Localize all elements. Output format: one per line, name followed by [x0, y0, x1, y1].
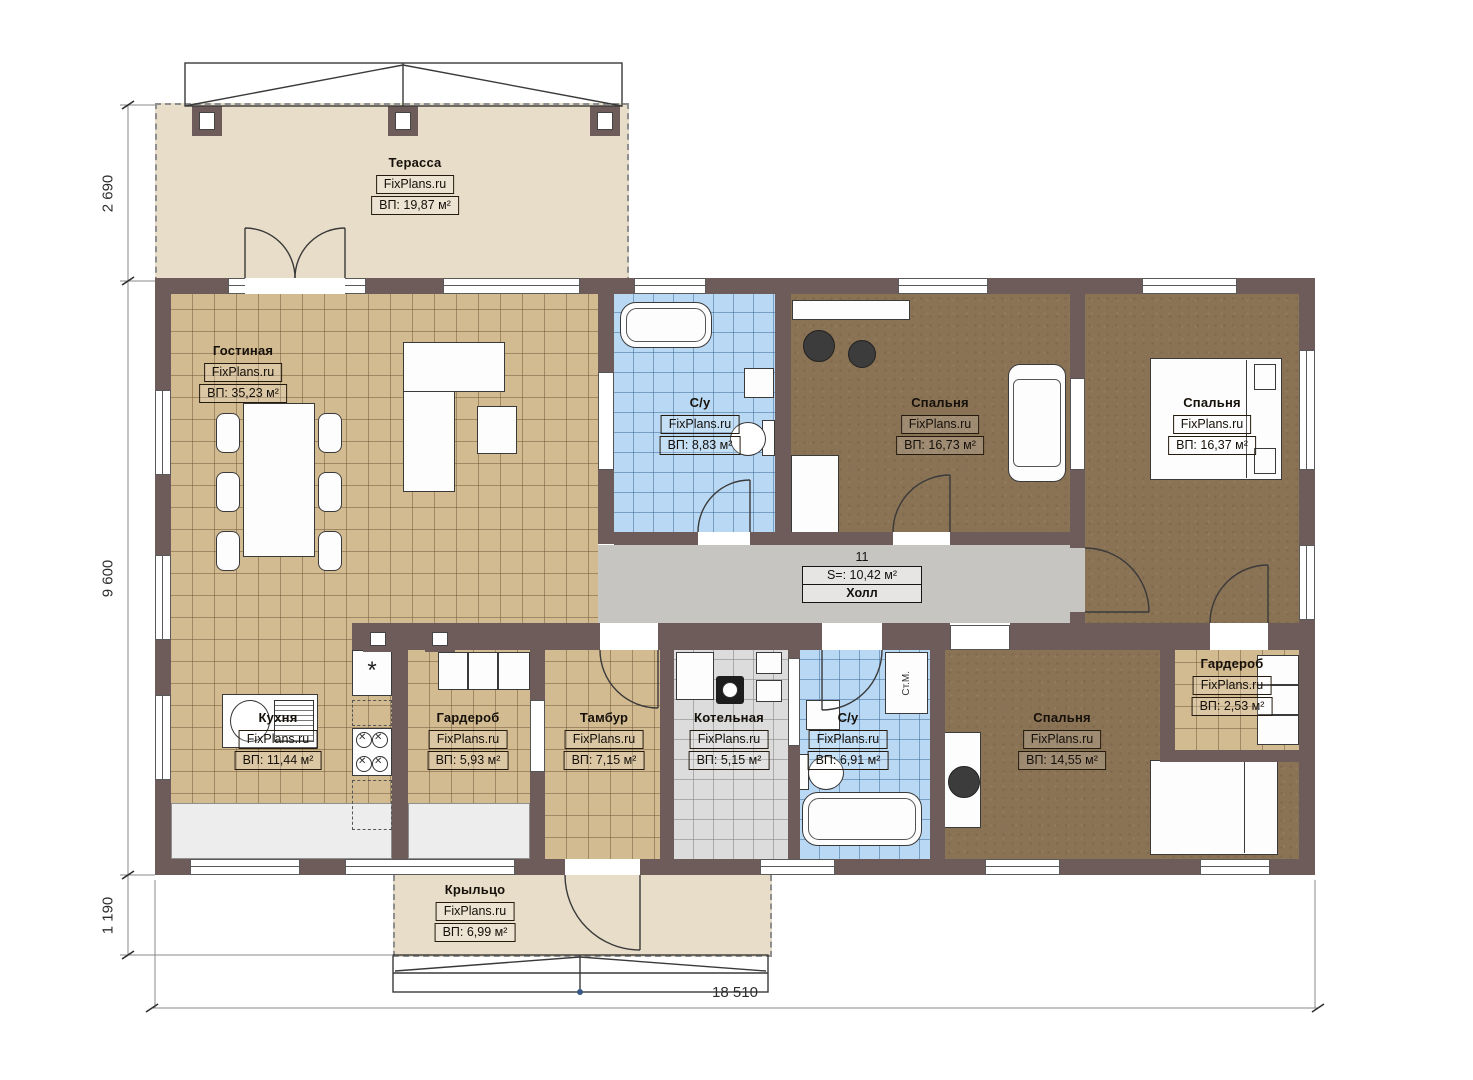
desk-chair: [948, 766, 980, 798]
room-area: ВП: 5,93 м²: [428, 751, 509, 770]
tall-cabinet: [352, 780, 392, 830]
wall-segment: [1160, 623, 1210, 650]
room-label-hall: 11 S=: 10,42 м² Холл: [802, 550, 922, 603]
room-name: Холл: [803, 584, 921, 602]
dimension-bottom-total: 18 510: [675, 984, 795, 1001]
wall-segment: [614, 532, 698, 545]
room-area: S=: 10,42 м²: [803, 567, 921, 584]
room-name: С/у: [838, 710, 859, 725]
wall-segment: [658, 623, 822, 650]
shelving: [498, 652, 530, 690]
tall-cabinet: [352, 700, 392, 726]
room-area: ВП: 6,99 м²: [435, 923, 516, 942]
hall-label-table: S=: 10,42 м² Холл: [802, 566, 922, 603]
room-area: ВП: 14,55 м²: [1018, 751, 1106, 770]
watermark: FixPlans.ru: [239, 730, 318, 749]
fixture: [756, 680, 782, 702]
room-name: Гостиная: [213, 343, 273, 358]
shelving: [1257, 715, 1299, 745]
loveseat: [1008, 364, 1066, 482]
room-label-bathroom1: С/у FixPlans.ru ВП: 8,83 м²: [660, 395, 741, 455]
wardrobe1-bottom-cabinet: [408, 803, 530, 859]
watermark: FixPlans.ru: [1023, 730, 1102, 749]
coffee-table: [477, 406, 517, 454]
wall-segment: [788, 746, 800, 859]
watermark: FixPlans.ru: [809, 730, 888, 749]
hall-floor: [1070, 548, 1085, 612]
bathtub: [620, 302, 712, 348]
room-name: Крыльцо: [445, 882, 506, 897]
watermark: FixPlans.ru: [690, 730, 769, 749]
watermark: FixPlans.ru: [1173, 415, 1252, 434]
door-opening: [565, 859, 640, 875]
door-leaf: [1070, 378, 1085, 470]
room-name: Тамбур: [580, 710, 628, 725]
door-opening: [1210, 625, 1268, 650]
cabinet: [791, 455, 839, 533]
room-label-bedroom3: Спальня FixPlans.ru ВП: 14,55 м²: [1018, 710, 1106, 770]
fixture: [756, 652, 782, 674]
window: [190, 859, 300, 875]
window: [443, 278, 580, 294]
door-opening: [245, 278, 345, 294]
vent-shaft: [425, 626, 455, 652]
door-opening: [600, 625, 658, 650]
watermark: FixPlans.ru: [901, 415, 980, 434]
room-label-tambour: Тамбур FixPlans.ru ВП: 7,15 м²: [564, 710, 645, 770]
wall-segment: [882, 623, 950, 650]
wall-segment: [530, 650, 545, 700]
chair: [216, 413, 240, 453]
door-leaf: [788, 658, 800, 746]
window: [155, 390, 171, 475]
wall-segment: [750, 532, 893, 545]
desk-chair: [848, 340, 876, 368]
bathtub: [802, 792, 922, 846]
window: [898, 278, 988, 294]
boiler-unit: [676, 652, 714, 700]
chair: [318, 531, 342, 571]
room-area: ВП: 35,23 м²: [199, 384, 287, 403]
room-label-living: Гостиная FixPlans.ru ВП: 35,23 м²: [199, 343, 287, 403]
shelving: [468, 652, 498, 690]
room-area: ВП: 19,87 м²: [371, 196, 459, 215]
wall-segment: [788, 650, 800, 658]
vent-shaft: [363, 626, 393, 652]
door-opening: [893, 532, 950, 545]
window: [1299, 545, 1315, 620]
washing-machine-label: Ст.М.: [901, 671, 912, 696]
wall-segment: [155, 859, 1315, 875]
wall-segment: [1160, 750, 1299, 762]
shelving: [438, 652, 468, 690]
window: [345, 859, 515, 875]
room-label-wardrobe1: Гардероб FixPlans.ru ВП: 5,93 м²: [428, 710, 509, 770]
room-name: Спальня: [1033, 710, 1091, 725]
pillow: [1254, 364, 1276, 390]
door-leaf: [598, 372, 614, 470]
room-label-porch: Крыльцо FixPlans.ru ВП: 6,99 м²: [435, 882, 516, 942]
desk-chair: [803, 330, 835, 362]
bed: [1150, 760, 1278, 855]
window: [985, 859, 1060, 875]
dimension-left-bottom: 1 190: [100, 886, 117, 946]
room-label-bedroom1: Спальня FixPlans.ru ВП: 16,73 м²: [896, 395, 984, 455]
room-area: ВП: 7,15 м²: [564, 751, 645, 770]
room-label-wardrobe2: Гардероб FixPlans.ru ВП: 2,53 м²: [1192, 656, 1273, 716]
room-number: 11: [856, 550, 869, 564]
floor-plan: * Ст.М.: [0, 0, 1473, 1080]
terrace-column: [388, 106, 418, 136]
wall-segment: [775, 294, 791, 545]
dimension-left-main: 9 600: [100, 549, 117, 609]
door-opening: [698, 532, 750, 545]
window: [634, 278, 706, 294]
washbasin: [744, 368, 774, 398]
room-name: Гардероб: [436, 710, 499, 725]
room-name: Спальня: [1183, 395, 1241, 410]
pillow: [1254, 448, 1276, 474]
terrace-column: [192, 106, 222, 136]
watermark: FixPlans.ru: [429, 730, 508, 749]
dimension-left-top: 2 690: [100, 164, 117, 224]
room-label-bathroom2: С/у FixPlans.ru ВП: 6,91 м²: [808, 710, 889, 770]
room-name: С/у: [690, 395, 711, 410]
wall-segment: [392, 650, 408, 859]
desk: [792, 300, 910, 320]
wall-segment: [930, 650, 945, 859]
window: [760, 859, 835, 875]
room-label-bedroom2: Спальня FixPlans.ru ВП: 16,37 м²: [1168, 395, 1256, 455]
bed-line: [1244, 762, 1245, 853]
room-area: ВП: 16,73 м²: [896, 436, 984, 455]
room-area: ВП: 5,15 м²: [689, 751, 770, 770]
room-area: ВП: 8,83 м²: [660, 436, 741, 455]
watermark: FixPlans.ru: [565, 730, 644, 749]
fridge: *: [352, 650, 392, 696]
wall-segment: [950, 532, 1085, 545]
room-label-terrace: Терасса FixPlans.ru ВП: 19,87 м²: [371, 155, 459, 215]
window: [155, 555, 171, 640]
stove: [352, 728, 392, 776]
room-name: Спальня: [911, 395, 969, 410]
room-label-kitchen: Кухня FixPlans.ru ВП: 11,44 м²: [235, 710, 322, 770]
room-label-boiler: Котельная FixPlans.ru ВП: 5,15 м²: [689, 710, 770, 770]
wall-segment: [1160, 650, 1175, 750]
room-area: ВП: 16,37 м²: [1168, 436, 1256, 455]
room-area: ВП: 11,44 м²: [235, 751, 322, 770]
wall-segment: [1010, 623, 1160, 650]
wall-segment: [1268, 623, 1299, 650]
watermark: FixPlans.ru: [661, 415, 740, 434]
boiler-dial: [722, 682, 738, 698]
wall-segment: [530, 772, 545, 859]
corner-sofa: [403, 342, 505, 392]
watermark: FixPlans.ru: [204, 363, 283, 382]
window: [155, 695, 171, 780]
chair: [216, 472, 240, 512]
door-leaf: [950, 625, 1010, 650]
terrace-column: [590, 106, 620, 136]
window: [1200, 859, 1270, 875]
washing-machine: Ст.М.: [885, 652, 928, 714]
watermark: FixPlans.ru: [376, 175, 455, 194]
room-name: Кухня: [258, 710, 297, 725]
room-area: ВП: 2,53 м²: [1192, 697, 1273, 716]
room-name: Котельная: [694, 710, 764, 725]
wall-segment: [660, 650, 674, 859]
chair: [318, 413, 342, 453]
chair: [318, 472, 342, 512]
watermark: FixPlans.ru: [436, 902, 515, 921]
chair: [216, 531, 240, 571]
dining-table: [243, 403, 315, 557]
fridge-symbol: *: [367, 657, 376, 684]
watermark: FixPlans.ru: [1193, 676, 1272, 695]
room-area: ВП: 6,91 м²: [808, 751, 889, 770]
door-opening: [822, 625, 882, 650]
window: [1299, 350, 1315, 470]
room-name: Гардероб: [1200, 656, 1263, 671]
room-name: Терасса: [389, 155, 442, 170]
door-leaf: [530, 700, 545, 772]
window: [1142, 278, 1237, 294]
